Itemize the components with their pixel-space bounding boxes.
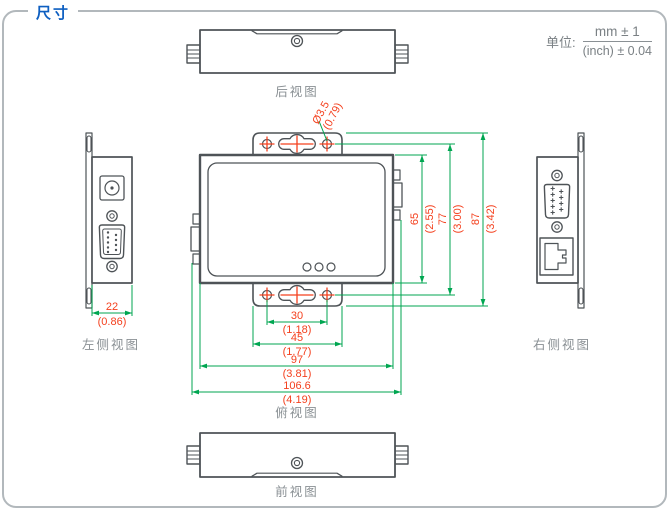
dim-45-mm: 45	[291, 332, 303, 344]
rear-view-label: 后视图	[275, 84, 319, 99]
right-view-label: 右侧视图	[533, 337, 591, 352]
dim-106-mm: 106.6	[283, 380, 311, 392]
dim-22-mm: 22	[106, 301, 118, 313]
front-body	[200, 433, 395, 477]
dim-97-inch: (3.81)	[283, 368, 312, 380]
top-body	[200, 155, 393, 283]
left-view-label: 左侧视图	[82, 337, 140, 352]
right-bracket-flange	[578, 133, 584, 308]
top-view-label: 俯视图	[275, 405, 319, 420]
dimension-diagram-page: 尺寸 单位: mm ± 1 (inch) ± 0.04 后视图	[0, 0, 670, 514]
dim-22-inch: (0.86)	[98, 316, 127, 328]
right-side-view: 右侧视图	[533, 133, 591, 352]
dim-106-inch: (4.19)	[283, 394, 312, 406]
dim-97-mm: 97	[291, 354, 303, 366]
dim-77-inch: (3.00)	[452, 205, 464, 234]
dim-87-inch: (3.42)	[485, 205, 497, 234]
db9m-shell	[544, 185, 569, 219]
dim-77-mm: 77	[437, 213, 449, 225]
left-bracket-flange	[86, 133, 92, 308]
dim-30-mm: 30	[291, 310, 303, 322]
dim-65-mm: 65	[409, 213, 421, 225]
front-view: 前视图	[187, 433, 408, 499]
dim-65-inch: (2.55)	[424, 205, 436, 234]
hole-diameter-callout: Ø3.5 (0.79)	[310, 95, 345, 132]
dim-87-mm: 87	[470, 213, 482, 225]
rear-view: 后视图	[187, 30, 408, 99]
front-view-label: 前视图	[275, 484, 319, 499]
dimension-drawing: 后视图 前视图	[0, 0, 670, 514]
dc-jack-pin	[110, 186, 113, 189]
rear-body	[200, 30, 395, 73]
